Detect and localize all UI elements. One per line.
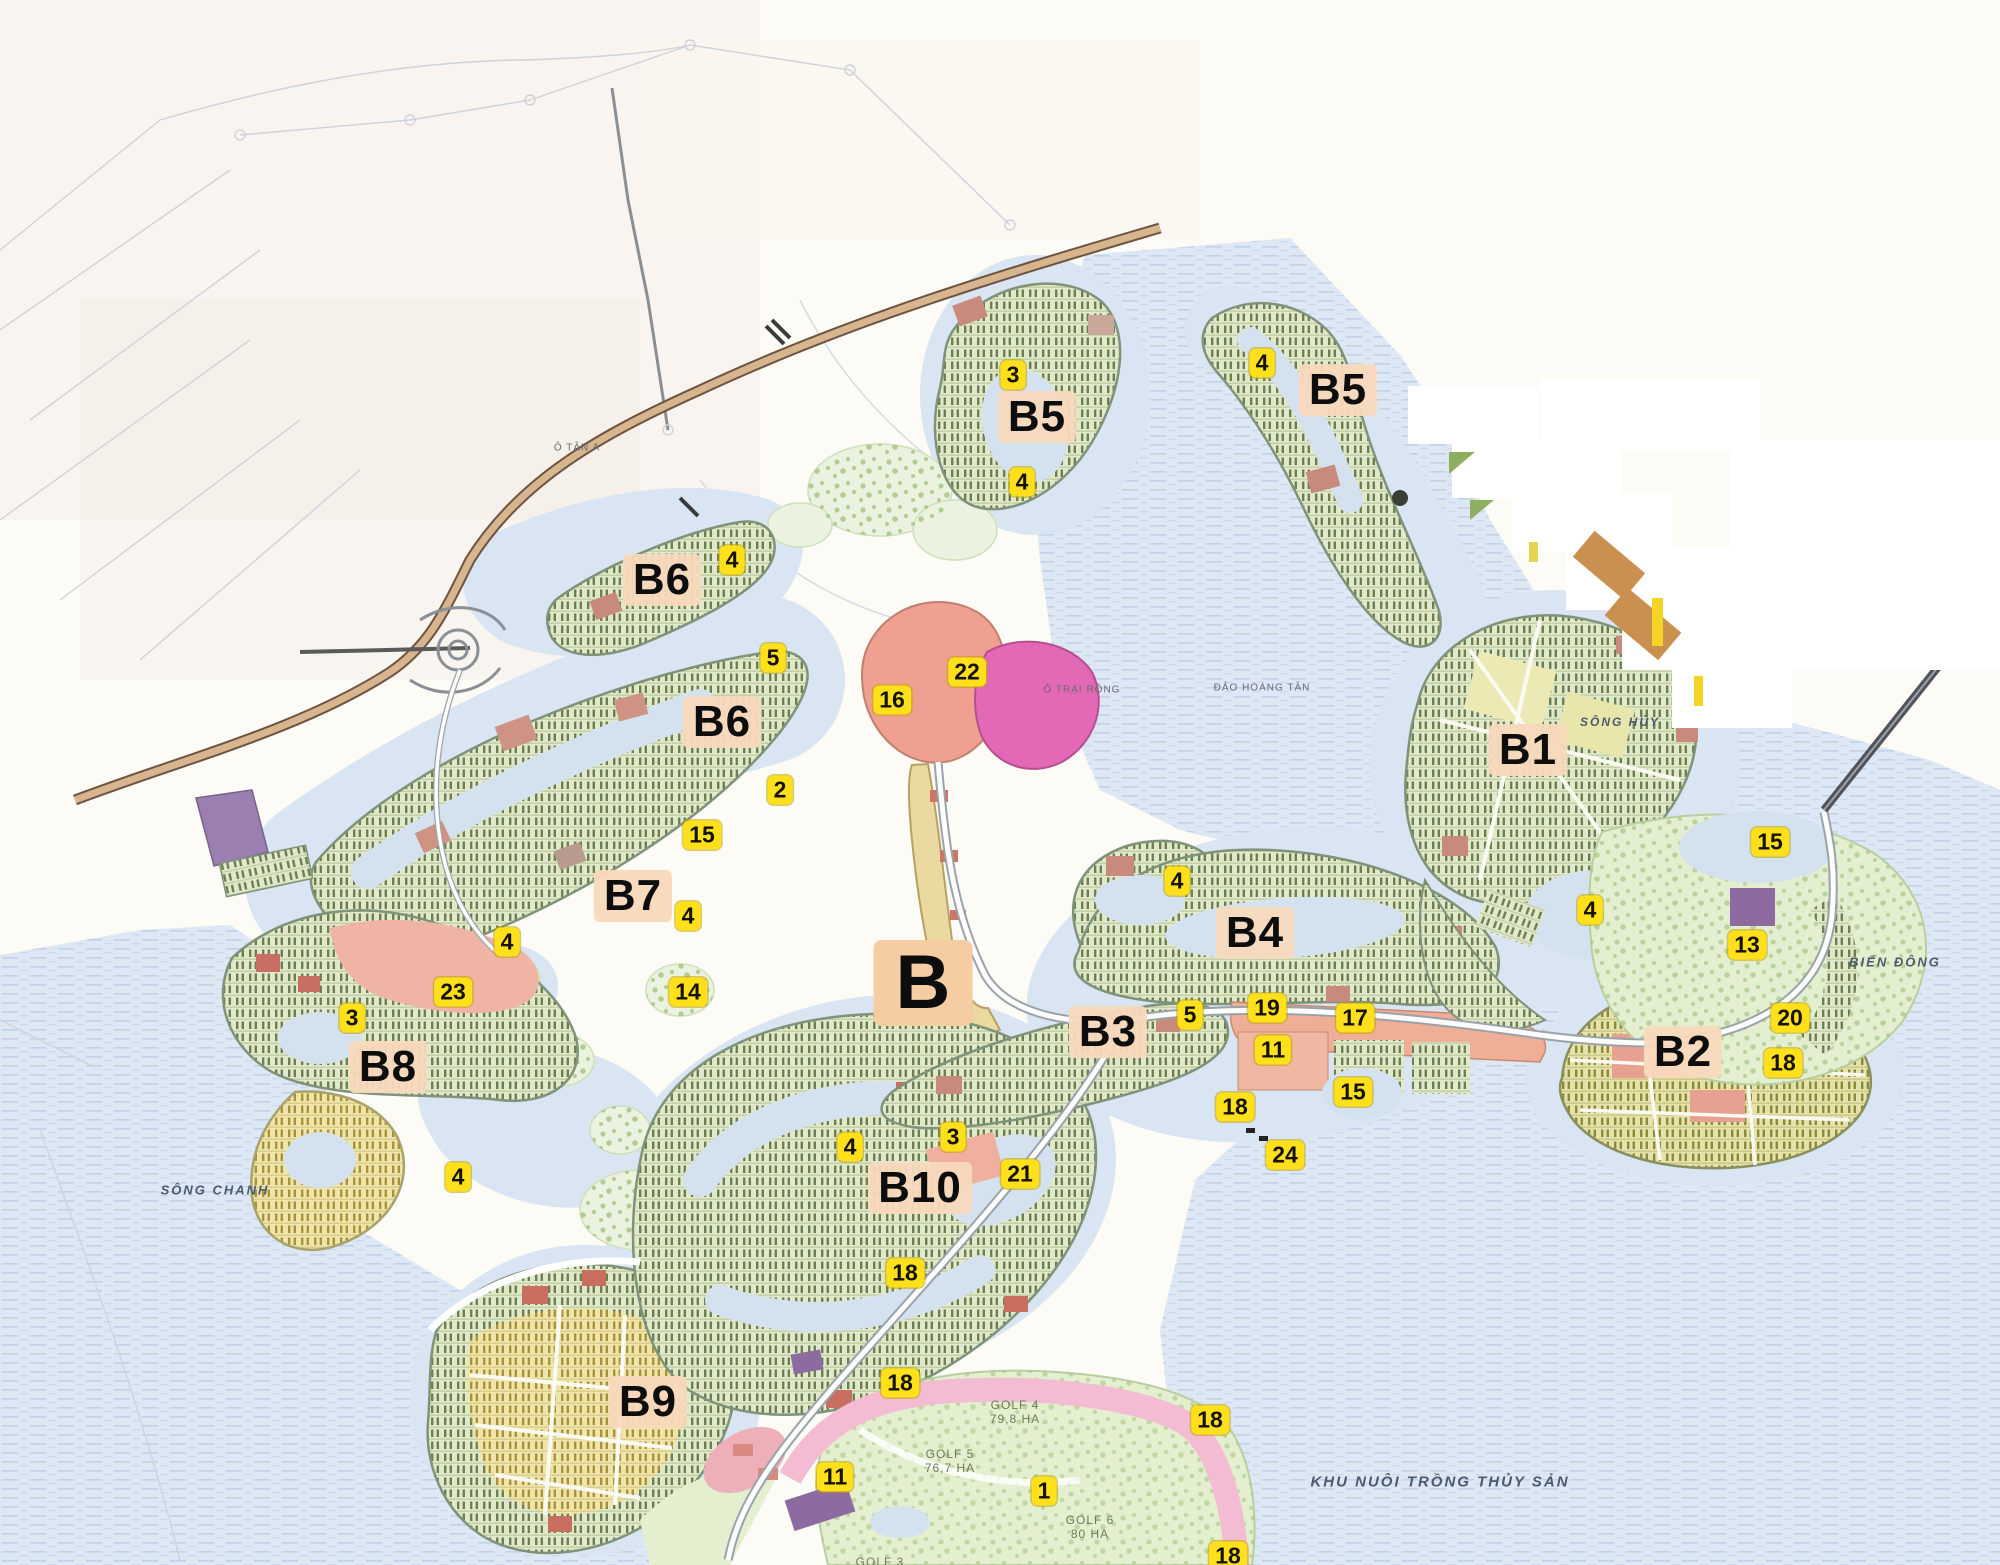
marker-23: 23 <box>434 978 472 1007</box>
marker-24: 24 <box>1266 1141 1304 1170</box>
master-plan-map: B B5B5B6B6B7B8B9B10B1B2B3B43444521541622… <box>0 0 2000 1565</box>
zone-label-b2: B2 <box>1644 1026 1722 1078</box>
marker-18: 18 <box>1764 1049 1802 1078</box>
marker-1: 1 <box>1032 1477 1057 1506</box>
place-label-7: GOLF 3 <box>856 1555 905 1565</box>
zone-label-b7: B7 <box>594 870 672 922</box>
zone-label-b10: B10 <box>868 1162 972 1214</box>
place-label-0: SÔNG CHANH <box>161 1183 270 1198</box>
marker-21: 21 <box>1001 1160 1039 1189</box>
marker-18: 18 <box>1209 1542 1247 1565</box>
marker-4: 4 <box>720 546 745 575</box>
place-label-3: KHU NUÔI TRỒNG THỦY SẢN <box>1310 1474 1569 1491</box>
marker-4: 4 <box>1578 896 1603 925</box>
labels-overlay: B B5B5B6B6B7B8B9B10B1B2B3B43444521541622… <box>0 0 2000 1565</box>
marker-2: 2 <box>768 776 793 805</box>
zone-label-b3: B3 <box>1069 1006 1147 1058</box>
marker-13: 13 <box>1728 931 1766 960</box>
place-label-8: Ô TRẠI RỒNG <box>1044 685 1121 696</box>
marker-18: 18 <box>881 1369 919 1398</box>
marker-3: 3 <box>340 1004 365 1033</box>
zone-label-b6: B6 <box>623 554 701 606</box>
place-label-1: SÔNG HỦY <box>1580 715 1660 729</box>
place-label-10: Ô TÂN A <box>554 443 600 454</box>
marker-4: 4 <box>1165 867 1190 896</box>
marker-18: 18 <box>1216 1093 1254 1122</box>
marker-4: 4 <box>1010 468 1035 497</box>
zone-label-b6: B6 <box>683 696 761 748</box>
zone-label-b9: B9 <box>609 1376 687 1428</box>
marker-18: 18 <box>886 1259 924 1288</box>
marker-20: 20 <box>1771 1004 1809 1033</box>
place-label-6: GOLF 6 80 HA <box>1066 1513 1115 1541</box>
marker-4: 4 <box>495 928 520 957</box>
marker-11: 11 <box>1255 1036 1291 1065</box>
marker-4: 4 <box>676 902 701 931</box>
marker-15: 15 <box>683 821 721 850</box>
marker-3: 3 <box>1001 361 1026 390</box>
zone-label-b5: B5 <box>998 391 1076 443</box>
marker-19: 19 <box>1248 994 1286 1023</box>
marker-4: 4 <box>838 1133 863 1162</box>
marker-3: 3 <box>941 1123 966 1152</box>
marker-4: 4 <box>446 1163 471 1192</box>
marker-5: 5 <box>761 644 786 673</box>
place-label-5: GOLF 5 76,7 HA <box>925 1447 975 1475</box>
marker-11: 11 <box>817 1463 853 1492</box>
zone-label-b-super: B <box>874 940 973 1026</box>
place-label-2: BIỂN ĐÔNG <box>1849 955 1941 970</box>
zone-label-b5: B5 <box>1299 364 1377 416</box>
place-label-4: GOLF 4 79,8 HA <box>990 1398 1040 1426</box>
marker-18: 18 <box>1191 1406 1229 1435</box>
place-label-9: ĐẢO HOÀNG TÂN <box>1214 683 1311 694</box>
marker-15: 15 <box>1751 828 1789 857</box>
zone-label-b8: B8 <box>349 1041 427 1093</box>
marker-14: 14 <box>669 978 707 1007</box>
marker-17: 17 <box>1336 1004 1374 1033</box>
zone-label-b4: B4 <box>1216 907 1294 959</box>
marker-4: 4 <box>1250 349 1275 378</box>
zone-label-b1: B1 <box>1489 724 1567 776</box>
marker-5: 5 <box>1178 1001 1203 1030</box>
marker-22: 22 <box>948 658 986 687</box>
marker-16: 16 <box>873 686 911 715</box>
marker-15: 15 <box>1334 1078 1372 1107</box>
